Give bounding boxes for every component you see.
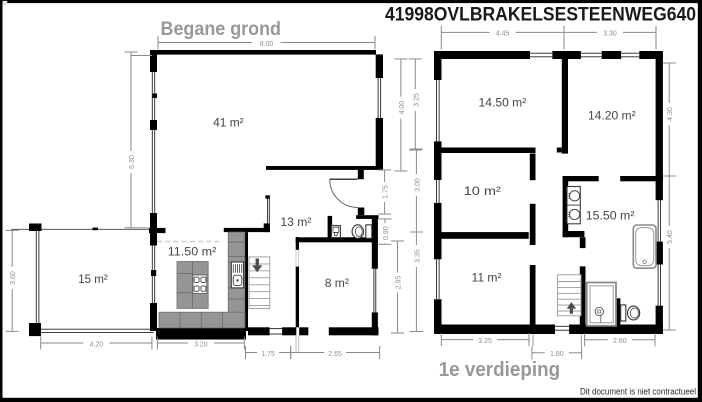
svg-text:4.00: 4.00 xyxy=(399,101,406,115)
svg-text:1.75: 1.75 xyxy=(383,185,390,199)
svg-text:6.30: 6.30 xyxy=(129,155,136,169)
svg-text:41 m²: 41 m² xyxy=(213,116,244,130)
svg-text:3.25: 3.25 xyxy=(478,338,492,345)
svg-text:8 m²: 8 m² xyxy=(325,276,349,290)
svg-text:4.30: 4.30 xyxy=(667,107,674,121)
svg-text:3.30: 3.30 xyxy=(603,31,617,38)
svg-text:2.60: 2.60 xyxy=(613,338,627,345)
svg-text:0.90: 0.90 xyxy=(383,226,390,240)
svg-text:2.65: 2.65 xyxy=(328,351,342,358)
svg-text:1.80: 1.80 xyxy=(550,351,564,358)
svg-text:11.50 m²: 11.50 m² xyxy=(168,244,217,258)
svg-text:14.20 m²: 14.20 m² xyxy=(588,108,636,122)
svg-text:14.50 m²: 14.50 m² xyxy=(479,96,527,110)
svg-text:1.75: 1.75 xyxy=(261,351,275,358)
svg-text:3.20: 3.20 xyxy=(194,341,208,348)
svg-text:2.95: 2.95 xyxy=(396,276,403,290)
svg-text:4.45: 4.45 xyxy=(496,31,510,38)
svg-text:Dit document is niet contractu: Dit document is niet contractueel xyxy=(580,387,696,397)
svg-text:3.35: 3.35 xyxy=(414,249,421,263)
svg-text:4.20: 4.20 xyxy=(89,341,103,348)
svg-text:8.00: 8.00 xyxy=(260,41,274,48)
svg-text:15 m²: 15 m² xyxy=(78,272,108,286)
svg-text:3.25: 3.25 xyxy=(413,93,420,107)
svg-text:5.40: 5.40 xyxy=(667,230,674,244)
svg-text:41998OVLBRAKELSESTEENWEG640: 41998OVLBRAKELSESTEENWEG640 xyxy=(385,3,696,25)
svg-text:Begane grond: Begane grond xyxy=(161,18,282,40)
svg-text:15.50 m²: 15.50 m² xyxy=(586,208,635,222)
svg-text:10 m²: 10 m² xyxy=(464,184,501,198)
svg-text:3.60: 3.60 xyxy=(10,271,17,285)
svg-text:3.00: 3.00 xyxy=(414,178,421,192)
svg-text:11 m²: 11 m² xyxy=(472,271,502,285)
svg-text:1e verdieping: 1e verdieping xyxy=(439,359,560,381)
svg-text:13 m²: 13 m² xyxy=(280,215,311,229)
